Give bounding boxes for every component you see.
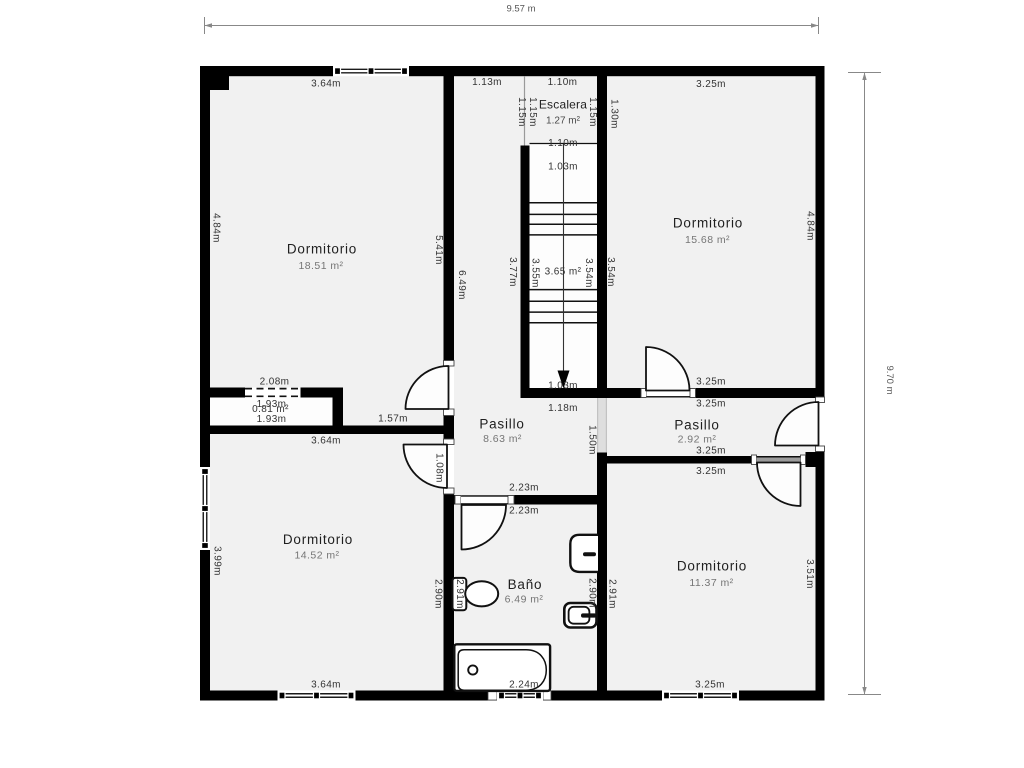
svg-text:1.03m: 1.03m <box>548 162 578 173</box>
svg-text:1.10m: 1.10m <box>548 138 578 149</box>
svg-text:3.64m: 3.64m <box>311 79 341 90</box>
svg-text:2.91m: 2.91m <box>607 579 618 609</box>
svg-text:4.84m: 4.84m <box>805 211 816 241</box>
svg-text:Escalera: Escalera <box>539 98 587 112</box>
svg-text:Pasillo: Pasillo <box>674 418 719 433</box>
svg-text:1.93m: 1.93m <box>257 414 287 425</box>
svg-text:11.37 m²: 11.37 m² <box>689 577 733 589</box>
svg-text:1.13m: 1.13m <box>472 77 502 88</box>
svg-text:18.51 m²: 18.51 m² <box>298 260 343 272</box>
svg-text:6.49 m²: 6.49 m² <box>505 594 544 606</box>
svg-text:Pasillo: Pasillo <box>479 417 524 432</box>
svg-text:2.23m: 2.23m <box>509 483 539 494</box>
svg-text:3.25m: 3.25m <box>696 446 726 457</box>
svg-text:6.49m: 6.49m <box>456 270 467 300</box>
svg-text:1.15m: 1.15m <box>527 97 538 127</box>
svg-text:1.57m: 1.57m <box>378 414 408 425</box>
svg-text:3.64m: 3.64m <box>311 436 341 447</box>
svg-text:1.15m: 1.15m <box>587 97 598 127</box>
svg-text:Dormitorio: Dormitorio <box>677 559 747 574</box>
svg-text:3.55m: 3.55m <box>530 258 541 288</box>
svg-text:1.30m: 1.30m <box>609 99 620 129</box>
svg-text:3.25m: 3.25m <box>696 79 726 90</box>
svg-text:3.64m: 3.64m <box>311 680 341 691</box>
svg-text:9.57 m: 9.57 m <box>506 4 535 15</box>
svg-text:3.54m: 3.54m <box>605 257 616 287</box>
svg-text:5.41m: 5.41m <box>433 235 444 265</box>
svg-text:1.08m: 1.08m <box>434 453 445 483</box>
svg-text:3.65 m²: 3.65 m² <box>545 267 582 278</box>
svg-text:3.25m: 3.25m <box>696 466 726 477</box>
svg-text:1.03m: 1.03m <box>548 381 578 392</box>
svg-text:Baño: Baño <box>508 577 543 592</box>
svg-text:1.50m: 1.50m <box>587 425 598 455</box>
svg-text:3.25m: 3.25m <box>696 377 726 388</box>
svg-text:3.99m: 3.99m <box>212 546 223 576</box>
svg-text:2.90m: 2.90m <box>587 578 598 608</box>
svg-text:1.18m: 1.18m <box>548 403 578 414</box>
svg-text:3.51m: 3.51m <box>804 559 815 589</box>
svg-text:2.23m: 2.23m <box>509 506 539 517</box>
svg-text:2.24m: 2.24m <box>509 680 539 691</box>
svg-text:9.70 m: 9.70 m <box>884 365 895 394</box>
svg-text:1.15m: 1.15m <box>516 97 527 127</box>
svg-text:3.54m: 3.54m <box>583 258 594 288</box>
svg-text:3.25m: 3.25m <box>696 399 726 410</box>
svg-text:15.68 m²: 15.68 m² <box>685 234 730 246</box>
svg-text:3.77m: 3.77m <box>507 257 518 287</box>
svg-text:Dormitorio: Dormitorio <box>673 216 743 231</box>
svg-text:1.27 m²: 1.27 m² <box>546 116 581 127</box>
svg-text:Dormitorio: Dormitorio <box>287 242 357 257</box>
svg-text:14.52 m²: 14.52 m² <box>294 550 339 562</box>
svg-text:2.08m: 2.08m <box>260 377 290 388</box>
svg-text:2.91m: 2.91m <box>454 579 465 609</box>
svg-text:Dormitorio: Dormitorio <box>283 532 353 547</box>
svg-text:4.84m: 4.84m <box>211 213 222 243</box>
svg-text:8.63 m²: 8.63 m² <box>483 433 522 445</box>
svg-text:2.92 m²: 2.92 m² <box>678 434 717 446</box>
svg-text:3.25m: 3.25m <box>695 680 725 691</box>
svg-text:1.10m: 1.10m <box>548 77 578 88</box>
svg-text:2.90m: 2.90m <box>433 579 444 609</box>
